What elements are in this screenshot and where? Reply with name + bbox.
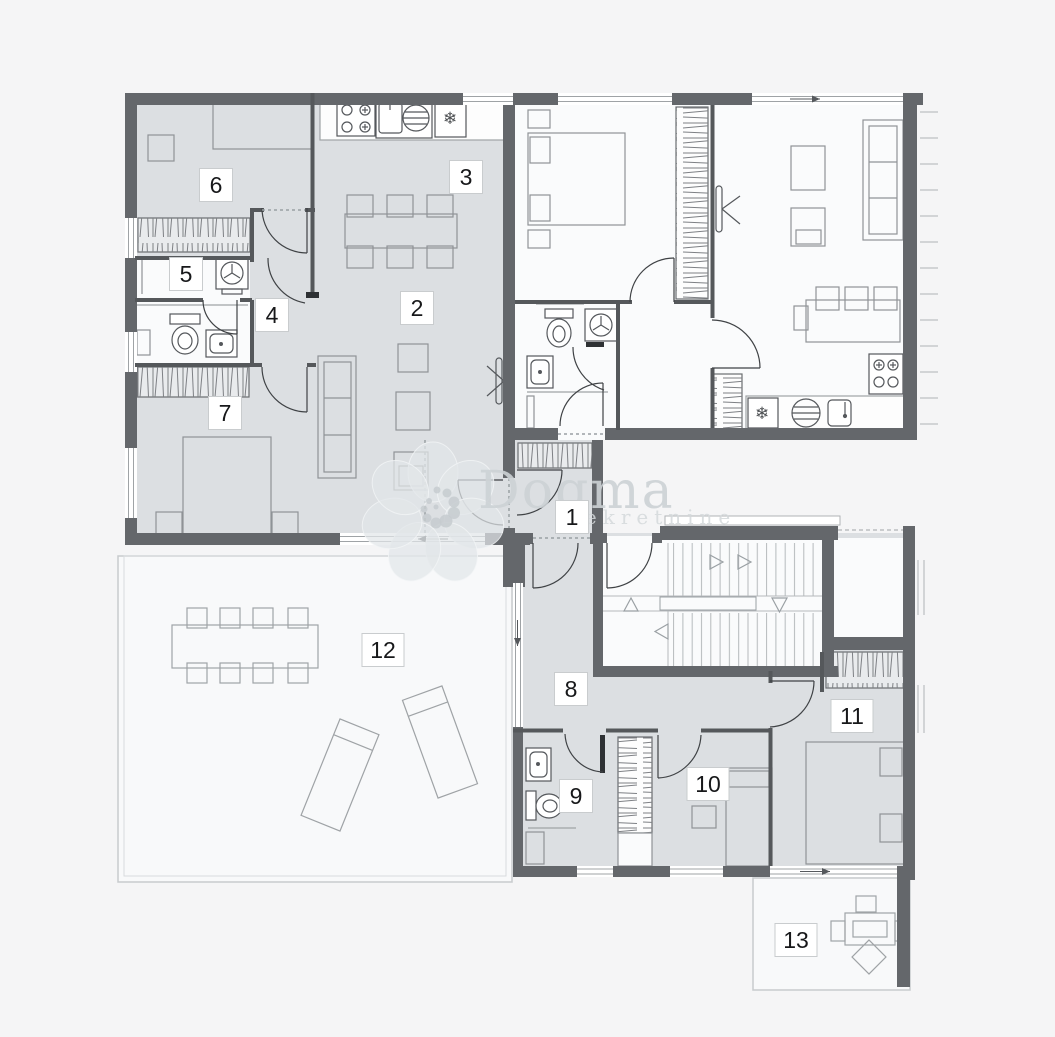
- stove-icon: [869, 354, 903, 394]
- svg-text:❄: ❄: [755, 404, 769, 424]
- room-label-5: 5: [170, 258, 203, 291]
- floorplan-page: ❄: [0, 0, 1055, 1037]
- sliding-window: [752, 93, 903, 105]
- svg-text:4: 4: [266, 302, 279, 328]
- room-label-13: 13: [775, 924, 817, 957]
- floorplan-svg: ❄: [0, 0, 1055, 1037]
- svg-text:1: 1: [566, 504, 579, 530]
- window: [463, 93, 513, 105]
- room-label-4: 4: [256, 299, 289, 332]
- sliding-window: [770, 866, 897, 877]
- watermark-tagline: nekretnine: [566, 505, 736, 529]
- window: [670, 866, 723, 877]
- closet-lower: [618, 833, 652, 866]
- window: [513, 583, 523, 727]
- room-label-9: 9: [560, 780, 593, 813]
- bath-sink-icon: [526, 748, 551, 781]
- room-label-6: 6: [200, 169, 233, 202]
- washing-machine-icon: [216, 258, 248, 294]
- window: [125, 218, 137, 258]
- stove-icon: [337, 100, 375, 136]
- room-label-11: 11: [831, 700, 873, 733]
- toilet-icon: [545, 309, 573, 347]
- washing-machine-icon: [585, 309, 618, 341]
- room-label-1: 1: [556, 501, 589, 534]
- right-apartment-floor: [515, 93, 905, 440]
- room-label-10: 10: [687, 768, 729, 801]
- exterior-glazing: [918, 560, 924, 733]
- loggia-floor: [830, 538, 905, 643]
- svg-text:10: 10: [695, 771, 721, 797]
- svg-text:❄: ❄: [443, 109, 457, 129]
- svg-text:11: 11: [840, 703, 864, 729]
- svg-text:6: 6: [210, 172, 223, 198]
- room-label-3: 3: [450, 161, 483, 194]
- toilet-icon: [170, 314, 200, 354]
- stair-handrail: [660, 597, 756, 610]
- terrace-floor: [118, 556, 512, 882]
- svg-text:2: 2: [411, 295, 424, 321]
- window: [577, 866, 613, 877]
- freezer-icon: ❄: [748, 398, 778, 428]
- window: [558, 93, 672, 105]
- svg-text:8: 8: [565, 676, 578, 702]
- bath-sink-icon: [527, 356, 553, 388]
- svg-text:5: 5: [180, 261, 193, 287]
- room-label-8: 8: [555, 673, 588, 706]
- svg-text:12: 12: [370, 637, 396, 663]
- svg-text:13: 13: [783, 927, 809, 953]
- room-label-12: 12: [362, 634, 404, 667]
- svg-text:9: 9: [570, 783, 583, 809]
- svg-text:3: 3: [460, 164, 473, 190]
- window: [125, 448, 137, 518]
- room-label-7: 7: [209, 397, 242, 430]
- railing-ticks: [920, 112, 938, 424]
- room-label-2: 2: [401, 292, 434, 325]
- svg-text:7: 7: [219, 400, 232, 426]
